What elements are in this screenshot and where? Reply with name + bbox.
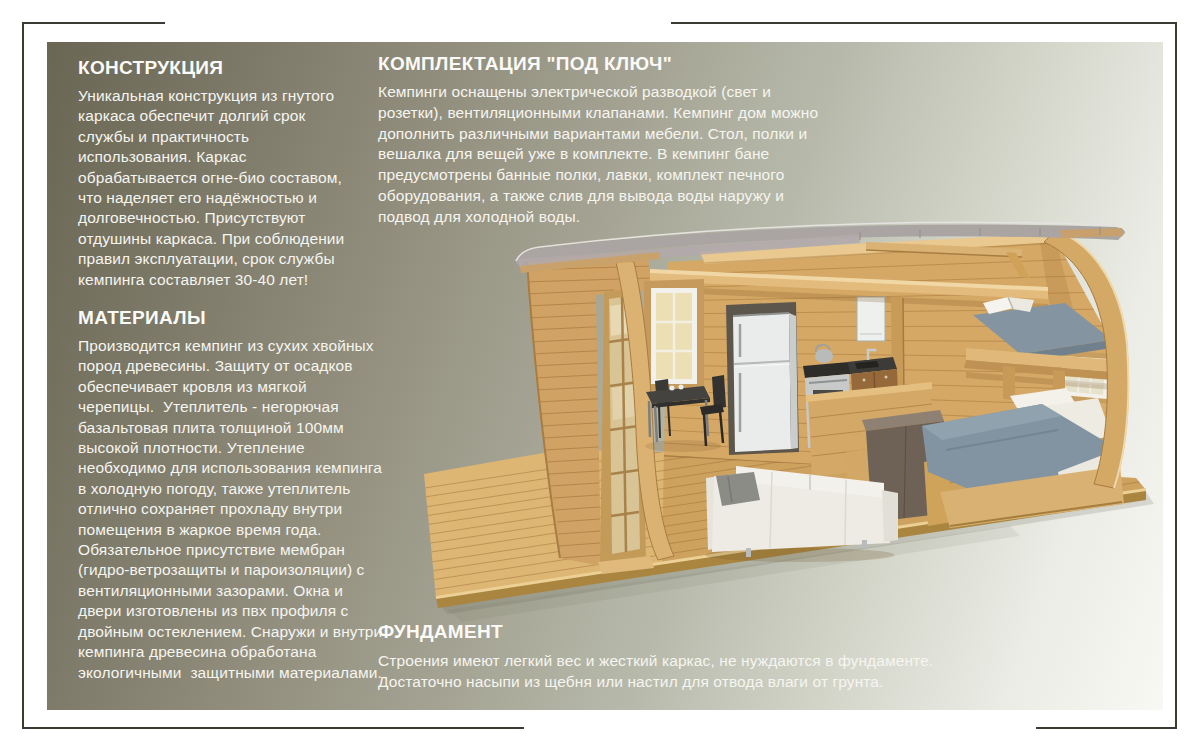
section-body: Строения имеют легкий вес и жесткий карк…: [378, 650, 933, 692]
section-turnkey: КОМПЛЕКТАЦИЯ "ПОД КЛЮЧ" Кемпинги оснащен…: [378, 53, 818, 228]
water-heater: [857, 297, 885, 341]
gradient-panel: КОНСТРУКЦИЯ Уникальная конструкция из гн…: [47, 42, 1163, 710]
fridge: [726, 302, 799, 455]
section-body: Производится кемпинг из сухих хвойных по…: [78, 336, 382, 683]
section-body: Уникальная конструкция из гнутого каркас…: [78, 86, 344, 290]
section-title: КОНСТРУКЦИЯ: [78, 57, 344, 79]
section-construction: КОНСТРУКЦИЯ Уникальная конструкция из гн…: [78, 57, 344, 290]
frame-line-right: [1175, 22, 1177, 729]
brochure-page: КОНСТРУКЦИЯ Уникальная конструкция из гн…: [0, 0, 1200, 750]
frame-line-bottom-left: [22, 727, 524, 729]
frame-line-top-right: [671, 22, 1177, 24]
illustration-container: [405, 210, 1170, 625]
frame-line-left: [22, 22, 24, 729]
section-body: Кемпинги оснащены электрической разводко…: [378, 82, 818, 228]
section-title: МАТЕРИАЛЫ: [78, 307, 382, 329]
section-foundation: ФУНДАМЕНТ Строения имеют легкий вес и же…: [378, 621, 933, 692]
camping-house-illustration: [405, 210, 1170, 625]
frame-line-bottom-right: [1036, 727, 1177, 729]
frame-line-top-left: [22, 22, 165, 24]
section-title: КОМПЛЕКТАЦИЯ "ПОД КЛЮЧ": [378, 53, 818, 75]
section-materials: МАТЕРИАЛЫ Производится кемпинг из сухих …: [78, 307, 382, 683]
back-window: [641, 279, 711, 401]
